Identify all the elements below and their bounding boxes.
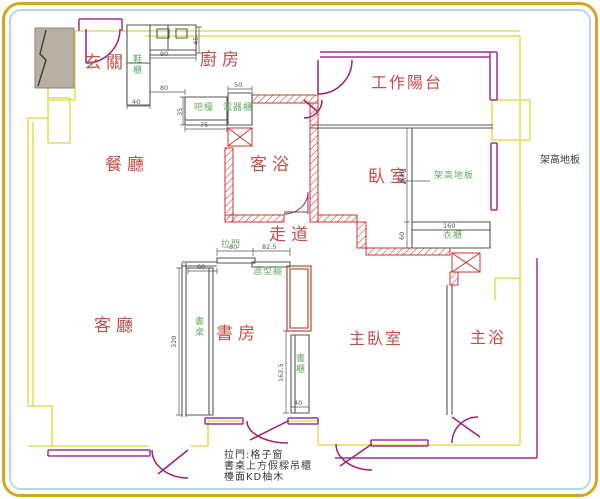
dim-label: 90 xyxy=(160,51,168,58)
annotation-wardrobe: 衣櫃 xyxy=(443,232,463,241)
annotation-appliance-cabinet: 電器櫃 xyxy=(223,104,253,113)
dim-label: 75 xyxy=(200,122,208,129)
annotation-bar-counter: 吧檯 xyxy=(194,104,214,113)
room-label-master-bedroom: 主臥室 xyxy=(349,331,403,347)
annotation-raised-floor: 架高地板 xyxy=(434,172,474,181)
dim-label: 80 xyxy=(229,244,237,251)
dim-label: 82.5 xyxy=(262,244,276,251)
plan-notes: 拉門:格子窗 書桌上方假樑吊櫃 檯面KD柚木 xyxy=(224,450,312,483)
room-label-dining: 餐廳 xyxy=(105,157,149,174)
plan-note-line: 拉門:格子窗 xyxy=(224,450,312,461)
dim-label: 40 xyxy=(294,400,302,407)
room-label-master-bath: 主浴 xyxy=(470,330,506,346)
dim-label: 60 xyxy=(197,264,205,271)
dim-label: 320 xyxy=(171,336,178,348)
room-label-corridor: 走道 xyxy=(269,227,313,244)
plan-note-line: 書桌上方假樑吊櫃 xyxy=(224,461,312,472)
page-border-blue xyxy=(9,9,591,490)
dim-label: 35 xyxy=(177,108,184,116)
dim-label: 50 xyxy=(234,82,242,89)
room-label-entrance: 玄關 xyxy=(84,55,128,72)
room-label-work-balcony: 工作陽台 xyxy=(371,75,443,91)
annotation-desk: 書桌 xyxy=(193,316,202,338)
dim-label: 40 xyxy=(132,99,140,106)
room-label-guest-bath: 客浴 xyxy=(250,157,294,174)
note-raised-floor-side: 架高地板 xyxy=(540,156,580,166)
dim-label: 60 xyxy=(399,232,406,240)
dim-label: 240 xyxy=(399,170,406,182)
dim-label: 160 xyxy=(443,223,455,230)
room-label-study: 書房 xyxy=(216,326,260,343)
dim-label: 162.5 xyxy=(278,363,285,382)
annotation-bookcase: 書櫃 xyxy=(294,353,303,375)
room-label-kitchen: 廚房 xyxy=(200,52,244,69)
annotation-feature-wall: 造型牆 xyxy=(253,268,283,277)
annotation-shoe-cabinet: 鞋櫃 xyxy=(131,54,140,76)
dim-label: 45 xyxy=(193,37,200,45)
plan-note-line: 檯面KD柚木 xyxy=(224,472,312,483)
dim-label: 80 xyxy=(160,85,168,92)
floor-plan-page: 玄關 廚房 工作陽台 餐廳 客浴 臥室 走道 客廳 書房 主臥室 主浴 鞋櫃 吧… xyxy=(0,0,600,499)
room-label-living: 客廳 xyxy=(94,318,138,335)
